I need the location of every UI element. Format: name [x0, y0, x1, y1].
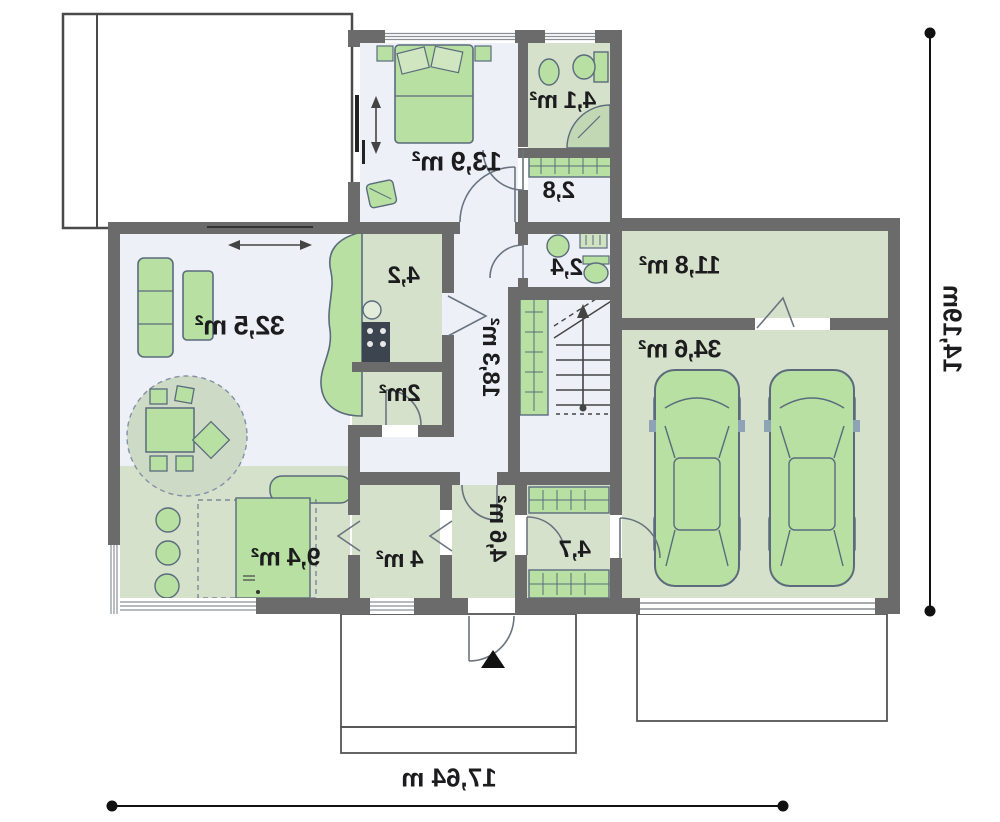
upper-terrace-outline [63, 14, 352, 228]
radiator [529, 155, 611, 177]
room-label-terrace: 9,4 m² [251, 544, 320, 573]
room-label-bathroom: 4,1 m² [530, 87, 596, 115]
dining-rug [127, 376, 247, 496]
room-label-hall: 18,3 m² [476, 318, 504, 397]
room-label-bedroom: 13,9 m² [412, 147, 502, 178]
room-label-boiler: 4,7 [559, 536, 591, 564]
driveway-outline [637, 614, 887, 721]
car-icon [649, 370, 745, 586]
dimension-height-label: 14,19m [937, 285, 968, 373]
stair-wardrobe [520, 295, 548, 415]
room-label-corridor: 2,8 [543, 177, 575, 205]
room-label-pantry: 2m² [379, 380, 420, 408]
floor-plan-drawing [0, 0, 1000, 822]
entrance-porch-outline [341, 614, 576, 753]
car-icon [764, 370, 860, 586]
bedroom-stool [366, 179, 397, 208]
room-label-utility: 4 m² [376, 546, 423, 574]
room-label-entry: 4,6 m² [483, 496, 511, 562]
room-label-kitchen: 4,2 [388, 262, 420, 290]
room-label-garage: 34,6 m² [639, 336, 722, 365]
room-label-wc: 2,4 [551, 254, 583, 282]
room-label-storage: 11,8 m² [639, 252, 720, 281]
dimension-width-label: 17,64 m [401, 763, 496, 794]
room-label-living: 32,5 m² [195, 311, 285, 342]
floor-plan: 32,5 m² 13,9 m² 4,1 m² 2,8 4,2 2m² 18,3 … [0, 0, 1000, 822]
